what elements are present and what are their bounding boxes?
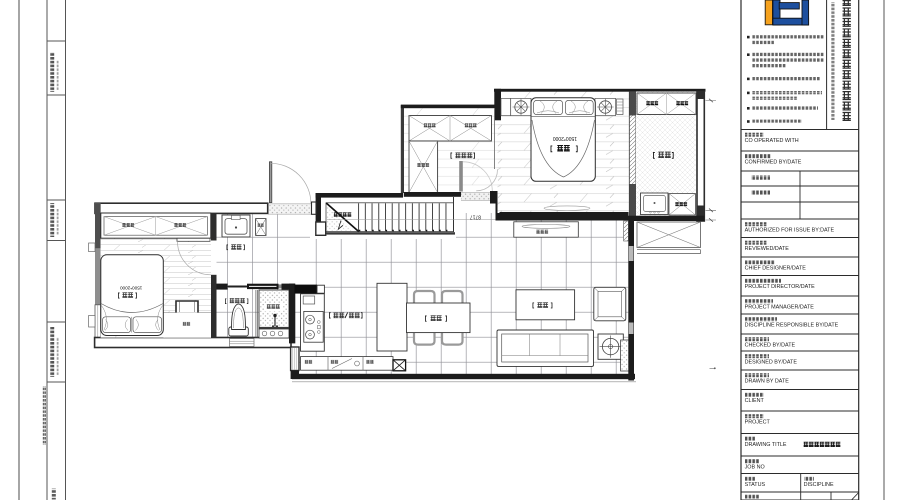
svg-text:CHECKED BY/DATE: CHECKED BY/DATE <box>745 343 796 349</box>
svg-text:8717: 8717 <box>470 213 481 219</box>
svg-text:1500*2000: 1500*2000 <box>553 135 577 141</box>
svg-text:JOB NO: JOB NO <box>745 465 765 471</box>
svg-text:AUTHORIZED FOR ISSUE BY:DATE: AUTHORIZED FOR ISSUE BY:DATE <box>745 228 835 234</box>
svg-text:PROJECT DIRECTOR/DATE: PROJECT DIRECTOR/DATE <box>745 284 815 290</box>
svg-text:DRAWN BY DATE: DRAWN BY DATE <box>745 379 790 385</box>
svg-text:PROJECT: PROJECT <box>745 420 771 426</box>
svg-text:CO OPERATED WITH: CO OPERATED WITH <box>745 138 799 144</box>
svg-text:DRAWING TITLE: DRAWING TITLE <box>745 442 787 448</box>
svg-text:REVIEWED/DATE: REVIEWED/DATE <box>745 246 790 252</box>
svg-text:DISCIPLINE: DISCIPLINE <box>804 482 834 488</box>
svg-text:CLIENT: CLIENT <box>745 398 765 404</box>
svg-text:CONFIRMED BY/DATE: CONFIRMED BY/DATE <box>745 160 802 166</box>
svg-text:CHIEF DESIGNER/DATE: CHIEF DESIGNER/DATE <box>745 266 807 272</box>
svg-text:STATUS: STATUS <box>745 482 766 488</box>
svg-text:PROJECT MANAGER/DATE: PROJECT MANAGER/DATE <box>745 305 815 311</box>
svg-text:DISCIPLINE RESPONSIBLE BY/DATE: DISCIPLINE RESPONSIBLE BY/DATE <box>745 323 839 329</box>
svg-text:DESIGNED BY/DATE: DESIGNED BY/DATE <box>745 360 798 366</box>
svg-text:1500*2000: 1500*2000 <box>120 285 143 290</box>
